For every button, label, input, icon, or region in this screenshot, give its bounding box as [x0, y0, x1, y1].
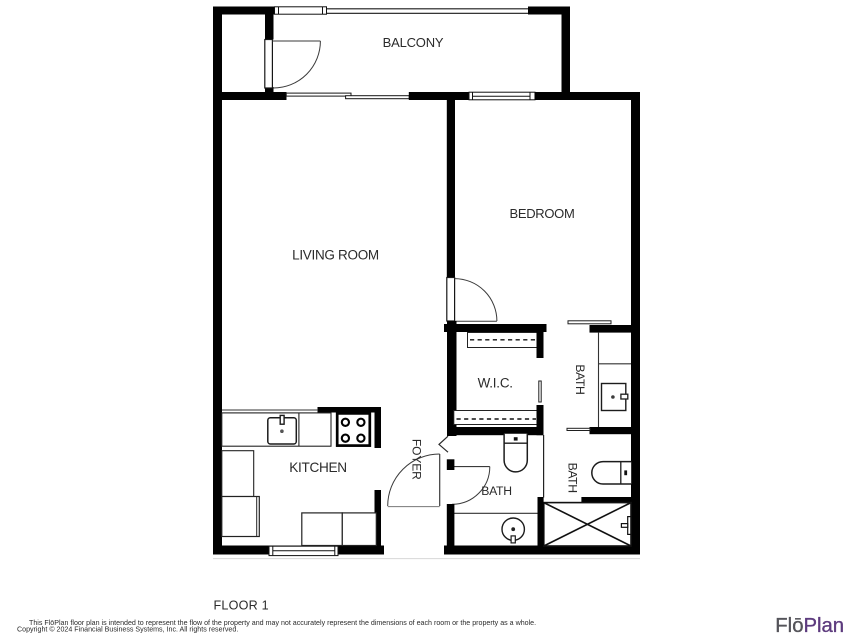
svg-text:BATH: BATH: [481, 484, 511, 498]
svg-text:FOYER: FOYER: [409, 439, 423, 480]
svg-text:BALCONY: BALCONY: [383, 35, 444, 50]
svg-text:FLOOR 1: FLOOR 1: [214, 598, 269, 612]
svg-text:W.I.C.: W.I.C.: [478, 376, 513, 391]
svg-text:LIVING ROOM: LIVING ROOM: [292, 248, 379, 263]
svg-text:KITCHEN: KITCHEN: [289, 460, 347, 475]
svg-text:BATH: BATH: [573, 364, 587, 394]
svg-text:Copyright © 2024 Financial Bus: Copyright © 2024 Financial Business Syst…: [17, 626, 238, 634]
svg-text:BATH: BATH: [565, 463, 579, 493]
svg-text:BEDROOM: BEDROOM: [509, 206, 574, 221]
svg-text:FlōPlan: FlōPlan: [775, 615, 844, 637]
